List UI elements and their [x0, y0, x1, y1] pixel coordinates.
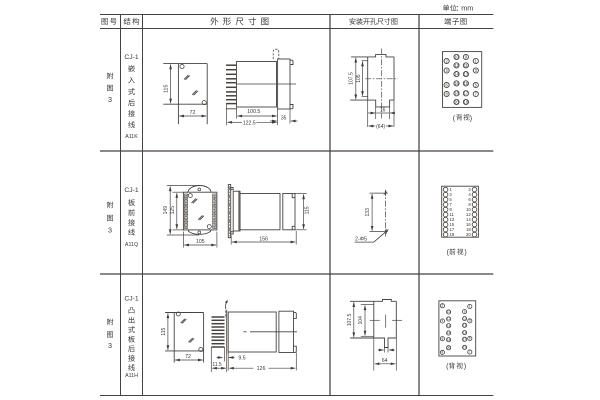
svg-text:13: 13: [463, 324, 467, 328]
svg-text:18: 18: [447, 338, 451, 342]
svg-text:115: 115: [305, 206, 311, 214]
svg-text:10: 10: [454, 54, 459, 59]
svg-text:10: 10: [447, 310, 451, 314]
svg-text:17: 17: [463, 338, 467, 342]
svg-text:5: 5: [469, 337, 471, 341]
svg-text:3: 3: [108, 341, 112, 350]
svg-text:CJ-1: CJ-1: [124, 296, 139, 303]
svg-text:A11H: A11H: [125, 373, 138, 379]
svg-text:20: 20: [466, 232, 471, 237]
svg-text:(64): (64): [376, 124, 385, 130]
svg-text:16: 16: [447, 331, 451, 335]
svg-text:18: 18: [454, 91, 459, 96]
svg-text:20: 20: [447, 346, 451, 350]
svg-text:A11K: A11K: [125, 134, 138, 140]
svg-text:19: 19: [464, 99, 469, 104]
svg-text:7: 7: [469, 350, 471, 354]
svg-text:): ): [470, 115, 472, 122]
svg-text:): ): [464, 364, 466, 371]
svg-text:64: 64: [382, 358, 388, 364]
svg-text:125: 125: [170, 206, 176, 215]
svg-text:35: 35: [281, 115, 287, 121]
svg-text:3: 3: [108, 95, 112, 104]
svg-text:122.5: 122.5: [243, 121, 256, 127]
svg-text:107.5: 107.5: [347, 314, 353, 327]
svg-text:19: 19: [463, 346, 467, 350]
svg-text:2-Φ5: 2-Φ5: [355, 237, 367, 243]
svg-text:9: 9: [464, 310, 466, 314]
svg-text:14: 14: [454, 72, 459, 77]
svg-text:72: 72: [190, 110, 196, 116]
svg-text:105: 105: [196, 239, 205, 245]
svg-text:16: 16: [454, 81, 459, 86]
svg-text:(: (: [447, 250, 450, 257]
svg-text:15: 15: [463, 331, 467, 335]
svg-text:4: 4: [442, 319, 444, 323]
svg-text:17: 17: [464, 91, 469, 96]
svg-text:100.5: 100.5: [247, 109, 260, 115]
svg-text:115: 115: [164, 85, 170, 93]
svg-text:13: 13: [464, 72, 469, 77]
svg-text:6: 6: [442, 337, 444, 341]
svg-text:8: 8: [442, 351, 444, 355]
svg-text:19: 19: [449, 232, 454, 237]
svg-text:115: 115: [161, 328, 167, 336]
svg-text:1: 1: [469, 305, 471, 309]
svg-text:107.5: 107.5: [349, 72, 355, 85]
svg-text:20: 20: [454, 99, 459, 104]
svg-text:11.5: 11.5: [212, 362, 222, 368]
svg-text:3: 3: [108, 226, 112, 235]
svg-text:149: 149: [163, 206, 169, 215]
svg-text:156: 156: [259, 236, 268, 242]
svg-text:14: 14: [447, 324, 451, 328]
svg-text:2: 2: [442, 304, 444, 308]
svg-text:9.5: 9.5: [238, 355, 245, 361]
svg-text:CJ-1: CJ-1: [124, 54, 139, 61]
svg-text:): ): [464, 250, 466, 257]
svg-text:3: 3: [469, 319, 471, 323]
svg-text:16: 16: [380, 107, 386, 113]
svg-text:12: 12: [454, 63, 459, 68]
svg-text:72: 72: [185, 354, 191, 360]
svg-text:104: 104: [358, 316, 364, 325]
svg-text:126: 126: [257, 366, 266, 372]
svg-text:133: 133: [365, 208, 371, 217]
svg-text:15: 15: [464, 81, 469, 86]
svg-text:12: 12: [447, 317, 451, 321]
svg-text:11: 11: [464, 63, 469, 68]
svg-text:105: 105: [356, 74, 362, 83]
svg-text:(: (: [446, 364, 449, 371]
svg-text:11: 11: [463, 317, 467, 321]
svg-text:mm: mm: [461, 4, 473, 13]
svg-text:A11Q: A11Q: [125, 242, 138, 248]
svg-text:(: (: [453, 115, 456, 122]
svg-text:CJ-1: CJ-1: [124, 187, 139, 194]
